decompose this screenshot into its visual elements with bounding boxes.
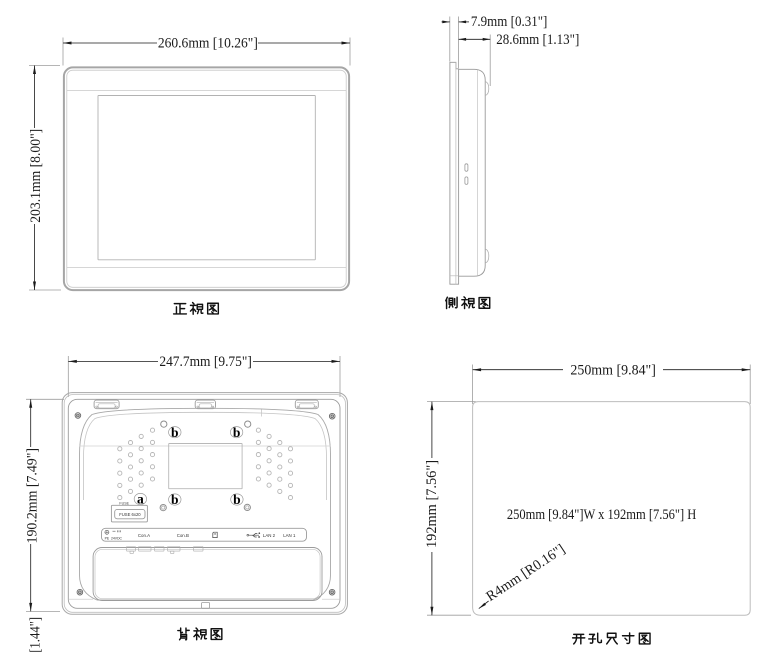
svg-text:[1.44"]: [1.44"] (28, 617, 44, 653)
svg-text:b: b (171, 492, 179, 507)
svg-text:24VDC: 24VDC (111, 537, 122, 541)
svg-text:28.6mm [1.13"]: 28.6mm [1.13"] (496, 32, 579, 48)
svg-text:b: b (233, 492, 241, 507)
svg-text:7.9mm [0.31"]: 7.9mm [0.31"] (471, 14, 548, 30)
svg-text:203.1mm [8.00"]: 203.1mm [8.00"] (28, 129, 44, 223)
svg-text:247.7mm [9.75"]: 247.7mm [9.75"] (159, 354, 252, 370)
svg-text:260.6mm [10.26"]: 260.6mm [10.26"] (158, 36, 258, 52)
svg-text:192mm [7.56"]: 192mm [7.56"] (424, 460, 440, 548)
svg-text:Con.A: Con.A (138, 533, 150, 538)
svg-text:250mm [9.84"]: 250mm [9.84"] (570, 362, 656, 378)
svg-text:b: b (171, 425, 179, 440)
svg-text:FUSE 6x20: FUSE 6x20 (119, 512, 141, 517)
svg-text:b: b (233, 425, 241, 440)
svg-text:190.2mm [7.49"]: 190.2mm [7.49"] (25, 448, 41, 544)
svg-text:LAN 2: LAN 2 (263, 533, 276, 538)
svg-text:LAN 1: LAN 1 (283, 533, 296, 538)
svg-text:250mm [9.84"]W x 192mm [7.56"]: 250mm [9.84"]W x 192mm [7.56"] H (507, 507, 697, 523)
svg-text:PE: PE (105, 537, 110, 541)
svg-text:Con.B: Con.B (177, 533, 189, 538)
svg-text:a: a (137, 492, 144, 507)
